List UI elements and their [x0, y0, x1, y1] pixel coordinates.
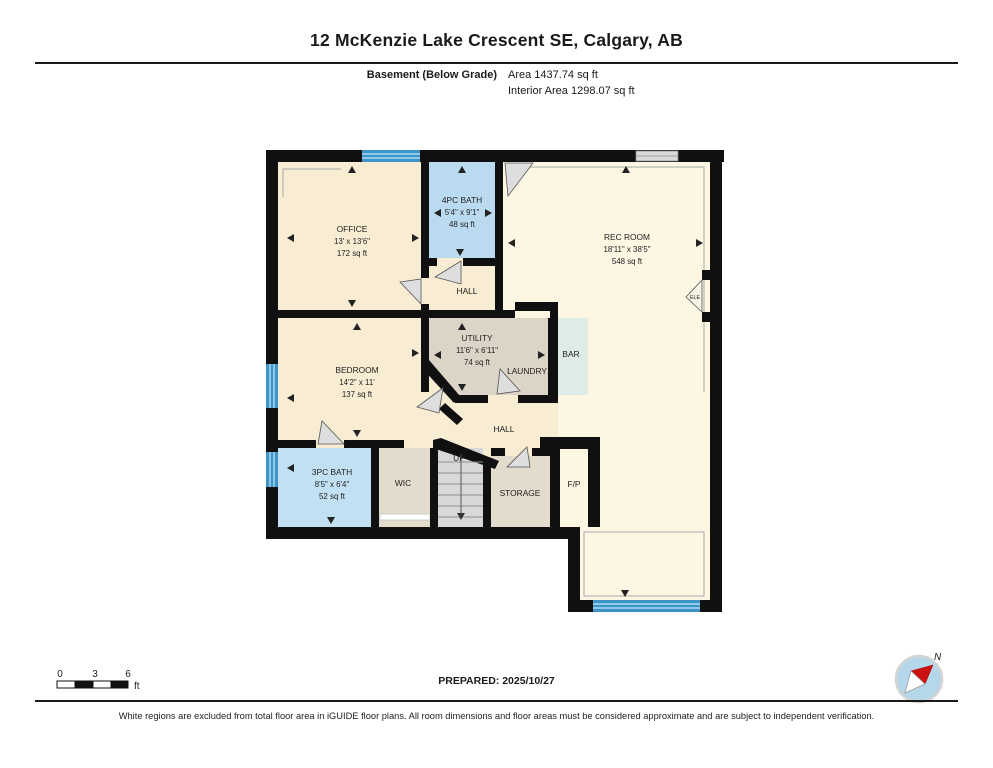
fireplace-label: F/P [567, 479, 580, 489]
bedroom-name: BEDROOM [335, 365, 378, 375]
bar-label: BAR [562, 349, 579, 359]
rec-room-dims: 18'11" x 38'5" [603, 245, 650, 254]
window-bath3 [266, 452, 278, 487]
wic-label: WIC [395, 478, 411, 488]
rec-room-name: REC ROOM [604, 232, 650, 242]
bath4-dims: 5'4" x 9'1" [445, 208, 480, 217]
rec-room-area: 548 sq ft [612, 257, 643, 266]
laundry-label: LAUNDRY [507, 366, 547, 376]
bedroom-area: 137 sq ft [342, 390, 373, 399]
floor-plan-page: 12 McKenzie Lake Crescent SE, Calgary, A… [0, 0, 993, 768]
footer-divider [35, 700, 958, 702]
bath4-area: 48 sq ft [449, 220, 476, 229]
bath3-name: 3PC BATH [312, 467, 352, 477]
utility-name: UTILITY [461, 333, 493, 343]
bath3-area: 52 sq ft [319, 492, 346, 501]
bath3-dims: 8'5" x 6'4" [315, 480, 350, 489]
window-top-right [636, 151, 678, 161]
office-dims: 13' x 13'6" [334, 237, 370, 246]
storage-label: STORAGE [500, 488, 541, 498]
up-label: UP [453, 453, 465, 463]
window-top [362, 150, 420, 162]
compass-north-label: N [934, 652, 942, 663]
window-rec-bottom [593, 600, 700, 612]
window-bedroom [266, 364, 278, 408]
bath4-name: 4PC BATH [442, 195, 482, 205]
office-name: OFFICE [337, 224, 368, 234]
office-area: 172 sq ft [337, 249, 368, 258]
hall-upper-label: HALL [457, 286, 478, 296]
elec-label: ELE [690, 295, 700, 301]
hall-lower-label: HALL [494, 424, 515, 434]
prepared-date: PREPARED: 2025/10/27 [0, 675, 993, 687]
utility-area: 74 sq ft [464, 358, 491, 367]
bedroom-dims: 14'2" x 11' [339, 378, 375, 387]
floor-plan-drawing: OFFICE 13' x 13'6" 172 sq ft 4PC BATH 5'… [0, 0, 993, 768]
disclaimer-text: White regions are excluded from total fl… [0, 711, 993, 721]
utility-dims: 11'6" x 6'11" [456, 346, 498, 355]
